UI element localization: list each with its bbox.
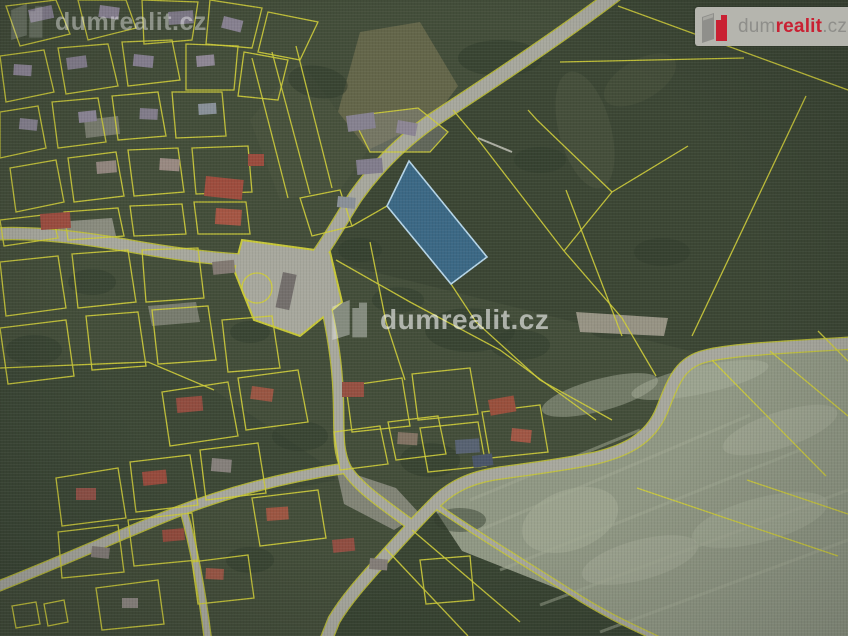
building [337,196,356,209]
logo-part-dum: dum [738,16,776,37]
building [205,568,224,580]
building [76,488,96,500]
aerial-cadastral-map-image: dumrealit.cz dumrealit.cz dumrealit.cz [0,0,848,636]
building [159,158,180,171]
building [19,118,38,131]
building [96,160,117,174]
trees [6,335,62,365]
building [455,438,480,454]
building [369,558,388,571]
building [13,64,32,76]
building [332,538,355,553]
building [342,382,364,397]
dumrealit-logo-icon [701,11,731,43]
courtyard [148,302,200,326]
building [176,396,203,413]
building [215,208,242,226]
building [212,260,235,275]
trees [634,238,690,266]
dumrealit-logo-text: dumrealit.cz [738,17,847,36]
building [133,54,154,68]
building [162,528,185,542]
building [266,506,289,521]
building [211,458,232,473]
building [356,158,383,175]
building [397,432,418,445]
building [511,428,532,443]
building [122,598,138,608]
logo-part-realit: realit [776,16,823,37]
building [91,546,110,559]
building [40,212,71,230]
trees [490,330,550,360]
building [78,110,97,123]
building [196,54,215,67]
building [168,10,194,25]
aerial-map [0,0,848,636]
building [139,108,158,120]
building [204,176,244,200]
trees [338,238,382,262]
building [142,469,167,485]
building [248,154,264,166]
building [198,103,217,115]
logo-part-cz: .cz [822,16,847,37]
dumrealit-logo: dumrealit.cz [695,7,848,46]
trees [514,147,566,173]
